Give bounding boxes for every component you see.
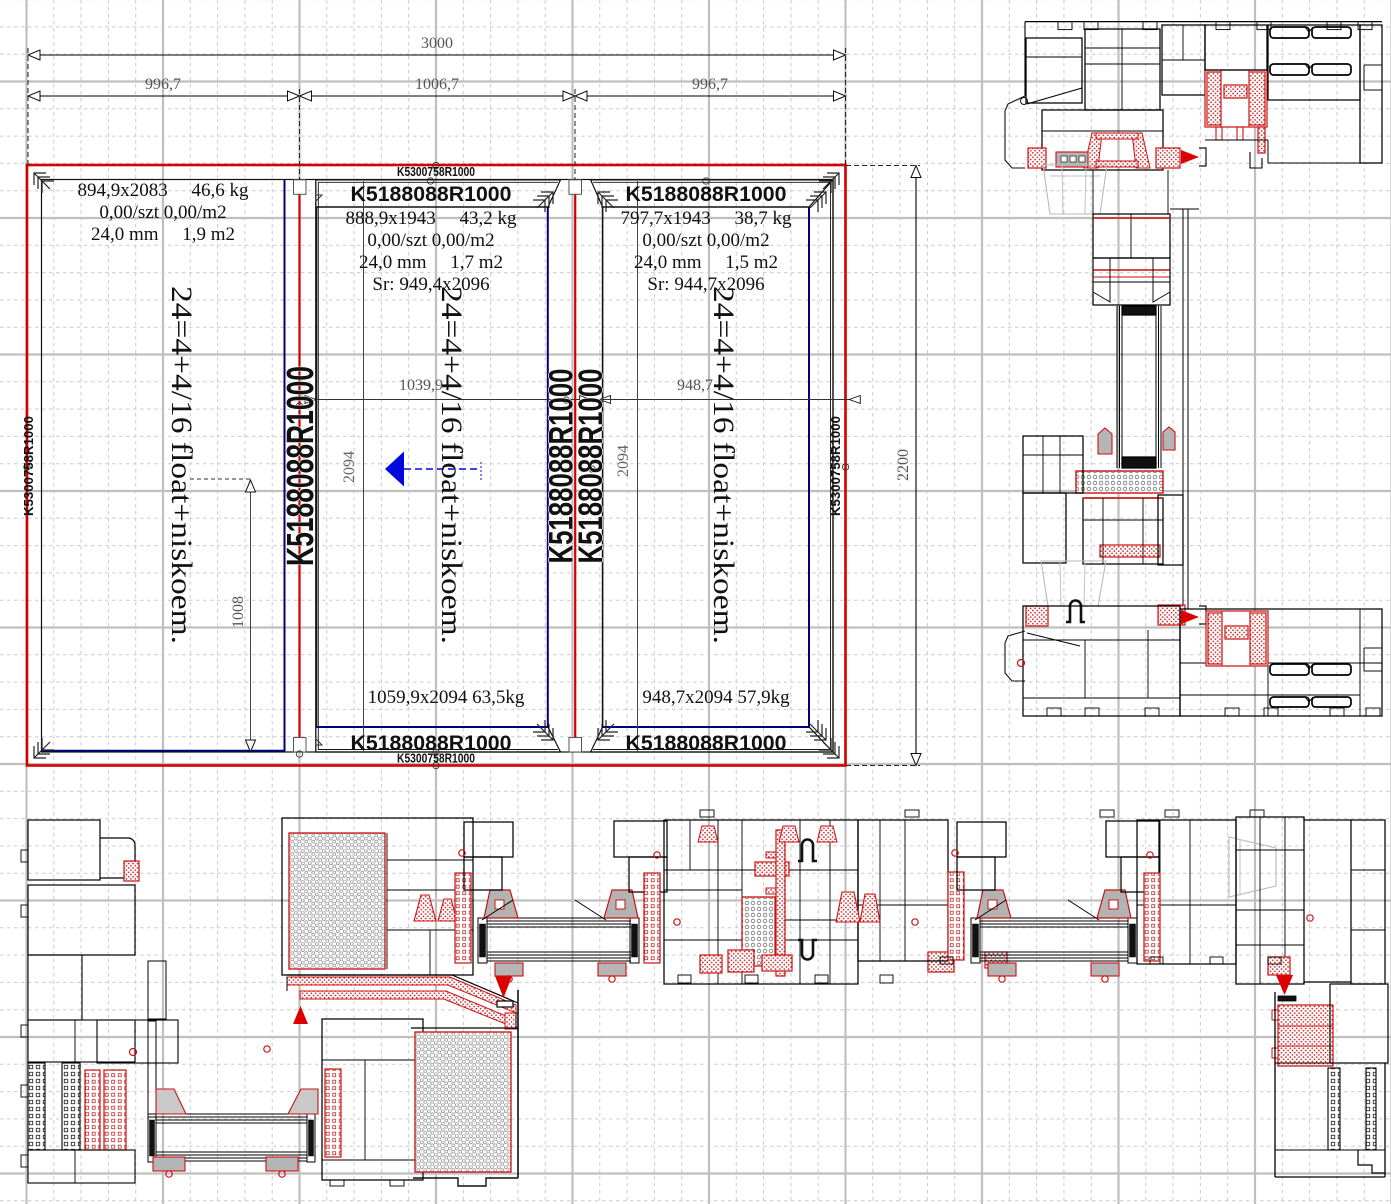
svg-text:K5188088R1000: K5188088R1000 (280, 366, 322, 566)
svg-text:Sr: 949,4x2096: Sr: 949,4x2096 (372, 274, 489, 295)
svg-text:1059,9x2094 63,5kg: 1059,9x2094 63,5kg (368, 687, 525, 708)
svg-text:2094: 2094 (341, 451, 358, 483)
svg-text:0,00/szt 0,00/m2: 0,00/szt 0,00/m2 (642, 230, 769, 251)
svg-text:K5300758R1000: K5300758R1000 (828, 416, 843, 516)
svg-text:K5300758R1000: K5300758R1000 (397, 164, 475, 179)
svg-text:24,0 mm 1,7 m2: 24,0 mm 1,7 m2 (359, 252, 503, 273)
svg-text:24,0 mm 1,5 m2: 24,0 mm 1,5 m2 (634, 252, 778, 273)
svg-text:K5188088R1000: K5188088R1000 (572, 369, 610, 564)
svg-text:2200: 2200 (895, 449, 912, 481)
svg-text:948,7x2094 57,9kg: 948,7x2094 57,9kg (642, 687, 790, 708)
svg-text:3000: 3000 (421, 35, 453, 52)
svg-text:1006,7: 1006,7 (415, 76, 459, 93)
svg-text:1008: 1008 (230, 596, 247, 628)
svg-text:K5188088R1000: K5188088R1000 (351, 183, 512, 206)
svg-text:0,00/szt 0,00/m2: 0,00/szt 0,00/m2 (99, 202, 226, 223)
svg-text:24=4+4/16 float+niskoem.: 24=4+4/16 float+niskoem. (165, 286, 198, 644)
svg-text:24,0 mm 1,9 m2: 24,0 mm 1,9 m2 (91, 224, 235, 245)
svg-text:2094: 2094 (615, 445, 632, 477)
svg-text:0,00/szt 0,00/m2: 0,00/szt 0,00/m2 (367, 230, 494, 251)
svg-text:K5300758R1000: K5300758R1000 (397, 751, 475, 766)
svg-text:894,9x2083 46,6 kg: 894,9x2083 46,6 kg (78, 180, 250, 201)
svg-text:24=4+4/16 float+niskoem.: 24=4+4/16 float+niskoem. (435, 286, 468, 644)
svg-text:996,7: 996,7 (145, 76, 181, 93)
svg-text:K5188088R1000: K5188088R1000 (626, 183, 787, 206)
svg-text:Sr: 944,7x2096: Sr: 944,7x2096 (647, 274, 764, 295)
svg-text:888,9x1943 43,2 kg: 888,9x1943 43,2 kg (346, 208, 518, 229)
svg-text:996,7: 996,7 (692, 76, 728, 93)
svg-text:K5188088R1000: K5188088R1000 (626, 732, 787, 755)
svg-text:K5300758R1000: K5300758R1000 (21, 416, 36, 516)
svg-text:797,7x1943 38,7 kg: 797,7x1943 38,7 kg (621, 208, 793, 229)
svg-text:24=4+4/16 float+niskoem.: 24=4+4/16 float+niskoem. (707, 286, 740, 644)
